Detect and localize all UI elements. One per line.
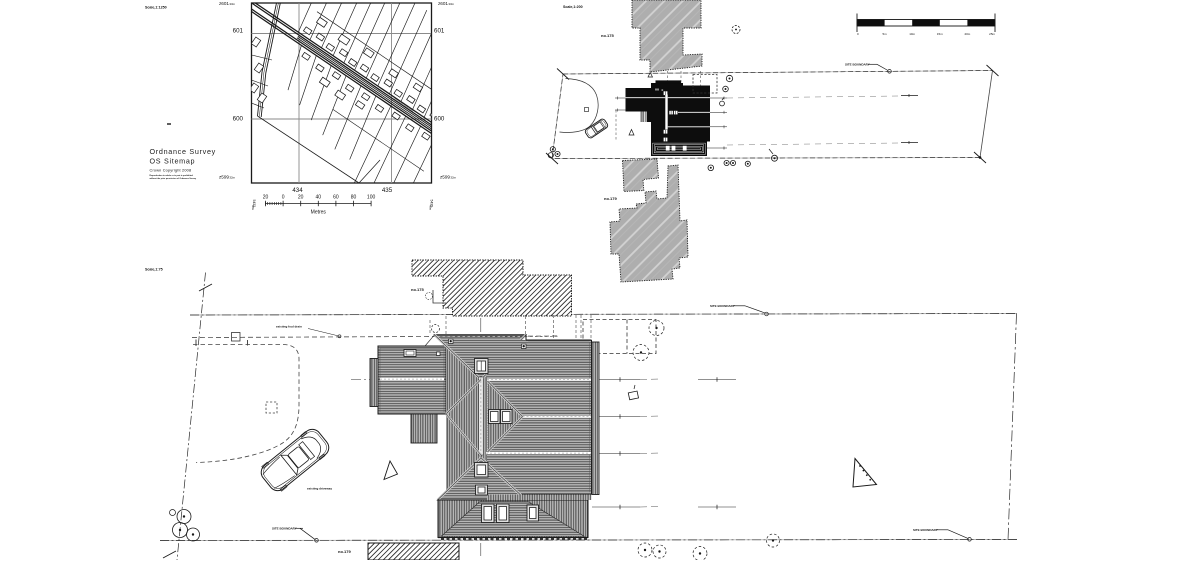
svg-text:100: 100 <box>367 195 376 201</box>
svg-text:48m: 48m <box>251 205 255 210</box>
svg-text:.33m: .33m <box>229 2 236 6</box>
svg-text:SITE BOUNDARY: SITE BOUNDARY <box>710 304 735 308</box>
svg-text:20: 20 <box>263 195 269 201</box>
svg-text:SITE BOUNDARY: SITE BOUNDARY <box>913 528 938 532</box>
svg-text:Scale,1:75: Scale,1:75 <box>145 268 163 272</box>
svg-text:20: 20 <box>298 195 304 201</box>
svg-text:5m: 5m <box>883 32 888 36</box>
svg-text:without the prior permission o: without the prior permission of Ordnance… <box>150 177 197 180</box>
svg-text:60: 60 <box>333 195 339 201</box>
svg-text:Crown Copyright 2008: Crown Copyright 2008 <box>150 169 192 173</box>
svg-text:601: 601 <box>233 28 244 35</box>
svg-text:Reproduction in whole or in pa: Reproduction in whole or in part is proh… <box>150 174 194 177</box>
svg-text:20m: 20m <box>964 32 970 36</box>
svg-text:434: 434 <box>292 187 303 194</box>
svg-text:Scale,1:200: Scale,1:200 <box>563 5 583 9</box>
svg-text:no.179: no.179 <box>604 196 617 201</box>
svg-text:25m: 25m <box>989 32 995 36</box>
svg-text:existing foul drain: existing foul drain <box>276 325 302 329</box>
svg-text:40: 40 <box>316 195 322 201</box>
svg-text:Metres: Metres <box>311 210 327 216</box>
svg-text:.32m: .32m <box>450 176 457 180</box>
svg-text:no.175: no.175 <box>411 287 424 292</box>
svg-text:no.175: no.175 <box>601 33 614 38</box>
svg-text:existing driveway: existing driveway <box>307 487 332 491</box>
svg-text:0: 0 <box>282 195 285 201</box>
svg-text:Ordnance Survey: Ordnance Survey <box>150 147 216 156</box>
svg-text:435: 435 <box>382 187 393 194</box>
svg-text:600: 600 <box>434 116 445 123</box>
svg-text:601: 601 <box>434 28 445 35</box>
svg-text:.32m: .32m <box>229 176 236 180</box>
svg-text:no.179: no.179 <box>338 549 351 554</box>
svg-text:SITE BOUNDARY: SITE BOUNDARY <box>272 527 297 531</box>
svg-text:OS Sitemap: OS Sitemap <box>150 157 196 166</box>
svg-text:600: 600 <box>233 116 244 123</box>
svg-text:48m: 48m <box>429 205 433 210</box>
svg-text:80: 80 <box>351 195 357 201</box>
svg-text:SITE BOUNDARY: SITE BOUNDARY <box>845 63 870 67</box>
svg-text:Scale,1:1250: Scale,1:1250 <box>145 6 167 10</box>
svg-text:10m: 10m <box>909 32 915 36</box>
svg-text:15m: 15m <box>937 32 943 36</box>
svg-text:.33m: .33m <box>448 2 455 6</box>
